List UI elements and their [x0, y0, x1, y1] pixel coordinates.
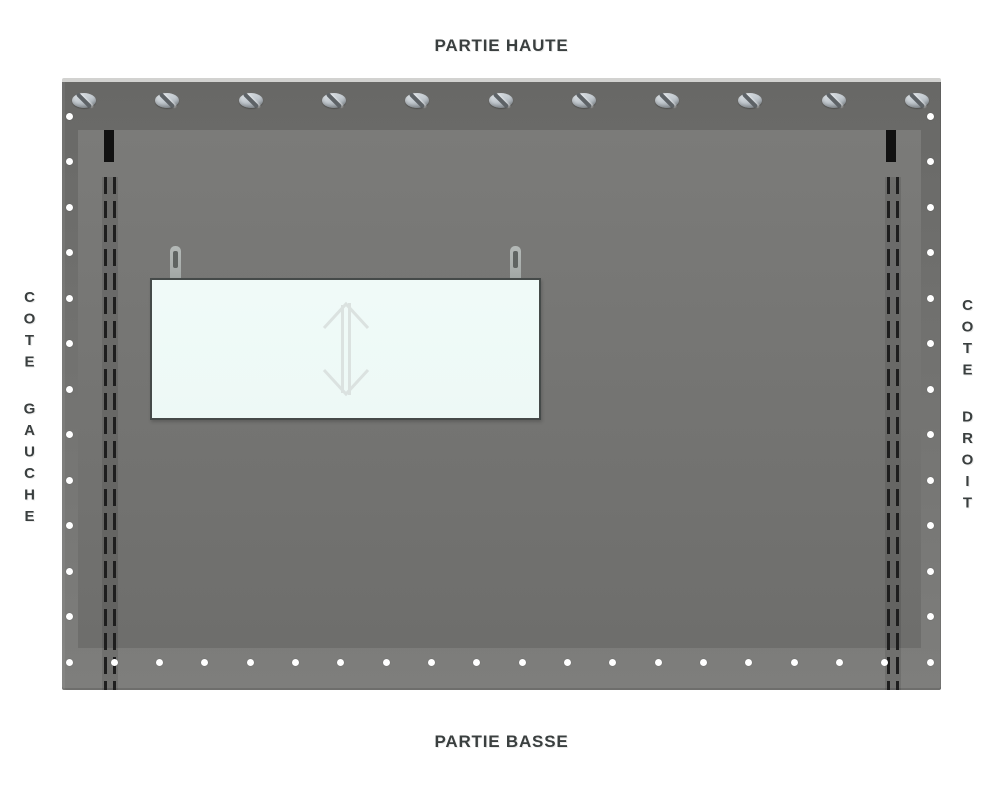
eyelet-dot: [927, 522, 934, 529]
eyelet-dot: [927, 659, 934, 666]
eyelet-dot: [201, 659, 208, 666]
label-partie-haute: PARTIE HAUTE: [62, 36, 941, 56]
stitch-line-icon: [887, 177, 890, 690]
screw-grommet-icon: [72, 93, 96, 108]
grommet-slot: [492, 92, 508, 108]
screw-grommet-icon: [322, 93, 346, 108]
eyelet-dot: [519, 659, 526, 666]
grommet-slot: [159, 92, 175, 108]
eyelet-dot: [927, 295, 934, 302]
eyelet-dot: [66, 204, 73, 211]
eyelet-dot: [881, 659, 888, 666]
eyelet-dot: [927, 204, 934, 211]
eyelet-dot: [927, 477, 934, 484]
grommet-slot: [909, 92, 925, 108]
eyelet-dot: [927, 386, 934, 393]
grommet-slot: [576, 92, 592, 108]
eyelet-dot: [66, 431, 73, 438]
screw-grommet-icon: [655, 93, 679, 108]
eyelet-dot: [745, 659, 752, 666]
eyelet-dot: [927, 613, 934, 620]
eyelet-dot: [247, 659, 254, 666]
eyelet-dot: [66, 568, 73, 575]
eyelet-dot: [66, 522, 73, 529]
eyelet-dot: [927, 568, 934, 575]
eyelet-dot: [428, 659, 435, 666]
window-panel[interactable]: [150, 278, 541, 420]
vertical-resize-arrow-icon: [322, 301, 370, 397]
eyelet-dot: [700, 659, 707, 666]
label-cote-gauche: COTE GAUCHE: [21, 289, 38, 530]
grommet-slot: [326, 92, 342, 108]
eyelet-dot: [927, 431, 934, 438]
eyelet-dot: [927, 340, 934, 347]
label-cote-droit: COTE DROIT: [959, 297, 976, 516]
eyelet-dot: [66, 386, 73, 393]
stitch-line-icon: [104, 177, 107, 690]
eyelet-dot: [927, 113, 934, 120]
eyelet-dot: [66, 113, 73, 120]
stitch-seam-left: [102, 177, 118, 690]
stitch-line-icon: [896, 177, 899, 690]
eyelet-dot: [66, 295, 73, 302]
eyelet-dot: [66, 659, 73, 666]
grommet-slot: [242, 92, 258, 108]
eyelet-dot: [66, 249, 73, 256]
eyelet-dot: [66, 158, 73, 165]
eyelet-dot: [156, 659, 163, 666]
seam-marker-bar-left: [104, 130, 114, 162]
eyelet-dot: [927, 158, 934, 165]
screw-grommet-icon: [489, 93, 513, 108]
stitch-line-icon: [113, 177, 116, 690]
eyelet-dot: [111, 659, 118, 666]
seam-marker-bar-right: [886, 130, 896, 162]
eyelet-dot: [337, 659, 344, 666]
eyelet-dot: [292, 659, 299, 666]
screw-grommet-icon: [405, 93, 429, 108]
hook-slot: [173, 251, 178, 268]
grommet-slot: [826, 92, 842, 108]
tarp-canvas: [62, 78, 941, 690]
stitch-seam-right: [885, 177, 901, 690]
screw-grommet-icon: [239, 93, 263, 108]
grommet-slot: [742, 92, 758, 108]
eyelet-dot: [564, 659, 571, 666]
eyelet-dot: [836, 659, 843, 666]
screw-grommet-icon: [155, 93, 179, 108]
screw-grommet-icon: [905, 93, 929, 108]
grommet-slot: [659, 92, 675, 108]
grommet-slot: [76, 92, 92, 108]
label-partie-basse: PARTIE BASSE: [62, 732, 941, 752]
eyelet-dot: [66, 477, 73, 484]
hook-slot: [513, 251, 518, 268]
screw-grommet-icon: [822, 93, 846, 108]
eyelet-dot: [927, 249, 934, 256]
grommet-slot: [409, 92, 425, 108]
eyelet-dot: [473, 659, 480, 666]
eyelet-dot: [66, 340, 73, 347]
screw-grommet-icon: [572, 93, 596, 108]
eyelet-dot: [383, 659, 390, 666]
screw-grommet-icon: [738, 93, 762, 108]
eyelet-dot: [609, 659, 616, 666]
eyelet-dot: [66, 613, 73, 620]
eyelet-dot: [655, 659, 662, 666]
eyelet-dot: [791, 659, 798, 666]
